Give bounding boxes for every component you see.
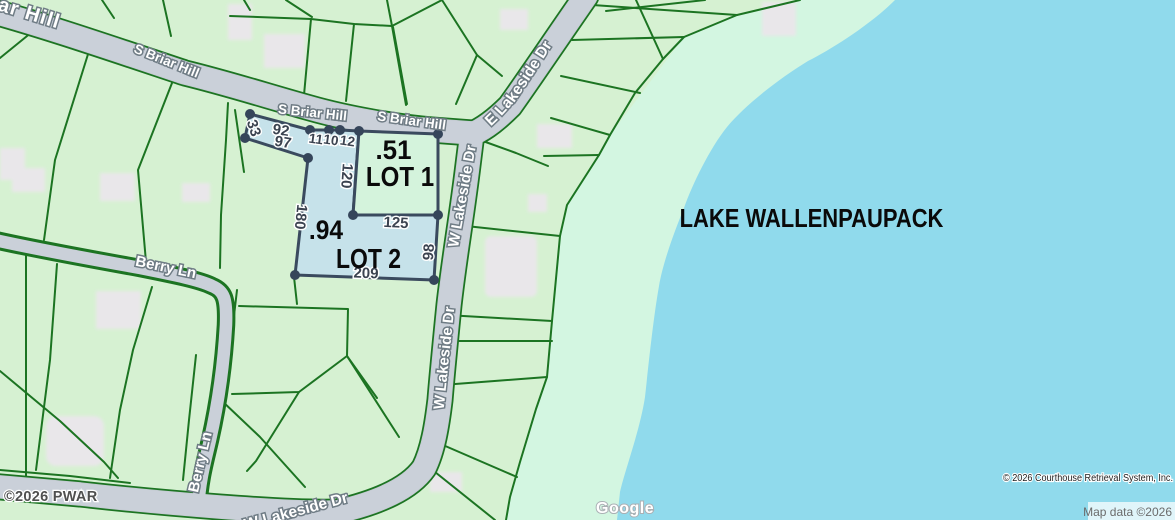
svg-text:12: 12 [339, 133, 356, 150]
svg-text:Google: Google [596, 500, 654, 517]
svg-text:.94: .94 [309, 216, 344, 245]
svg-text:120: 120 [337, 163, 356, 189]
svg-text:125: 125 [383, 214, 409, 232]
svg-text:10: 10 [323, 132, 340, 149]
svg-text:180: 180 [291, 204, 311, 231]
svg-text:© 2026 Courthouse Retrieval Sy: © 2026 Courthouse Retrieval System, Inc. [1003, 473, 1173, 484]
svg-text:Map data ©2026: Map data ©2026 [1083, 505, 1172, 519]
svg-text:LOT 2: LOT 2 [336, 244, 401, 275]
svg-text:97: 97 [273, 133, 292, 153]
svg-text:LAKE WALLENPAUPACK: LAKE WALLENPAUPACK [680, 204, 944, 233]
svg-text:LOT 1: LOT 1 [366, 160, 434, 192]
svg-text:98: 98 [420, 243, 438, 261]
svg-text:©2026 PWAR: ©2026 PWAR [4, 489, 98, 505]
